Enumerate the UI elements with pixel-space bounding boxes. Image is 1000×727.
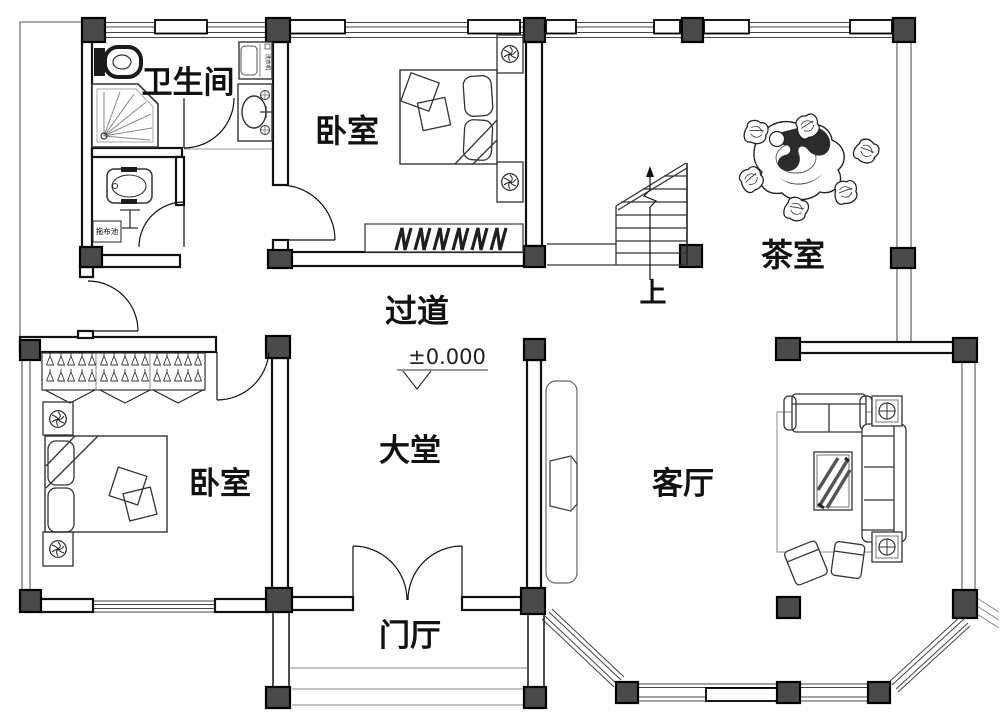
side-table-plant-top xyxy=(872,396,902,426)
elevation-marker xyxy=(397,370,488,389)
tub-room-door xyxy=(139,202,184,247)
bedroom-top-door xyxy=(280,185,335,240)
bathroom-east-wall-upper xyxy=(273,42,288,185)
bedroom-left-south-wall-b xyxy=(215,599,267,612)
coffee-table xyxy=(814,452,852,510)
side-table-plant-bottom xyxy=(872,532,902,562)
floor-plan: 洗衣机 xyxy=(0,0,1000,727)
label-mop-pool: 拖布池 xyxy=(96,226,119,236)
bedroom-left-door xyxy=(217,352,269,400)
bathtub-icon xyxy=(107,167,152,204)
tub-room-south-wall xyxy=(93,255,180,267)
mop-pool-icon xyxy=(93,210,140,242)
eave-line xyxy=(20,22,82,341)
label-corridor: 过道 xyxy=(385,293,449,329)
entry-wall-left xyxy=(290,597,353,610)
label-hall: 大堂 xyxy=(379,433,441,468)
label-living-room: 客厅 xyxy=(652,466,714,501)
door-jamb-notch xyxy=(78,331,93,338)
washing-machine-icon: 洗衣机 xyxy=(239,42,272,79)
label-bathroom: 卫生间 xyxy=(142,65,235,100)
staircase xyxy=(547,163,687,280)
corridor-west-door xyxy=(88,281,138,331)
hall-living-divider-wall xyxy=(527,360,541,590)
porch-steps xyxy=(290,668,527,705)
label-entrance-hall: 门厅 xyxy=(379,618,441,653)
bay-window-sill xyxy=(706,688,778,701)
bedroom-left-south-wall-a xyxy=(40,599,93,612)
label-elevation: ±0.000 xyxy=(408,345,486,369)
bathroom-door xyxy=(184,98,234,148)
entry-double-door xyxy=(353,546,462,600)
bedroom-top-east-wall xyxy=(526,42,542,246)
bathroom-west-wall xyxy=(82,40,92,267)
tv-cabinet-icon xyxy=(546,381,577,583)
sofa-three-seat xyxy=(862,424,906,542)
label-bedroom-top: 卧室 xyxy=(315,113,379,149)
label-stairs-up: 上 xyxy=(640,278,667,308)
bedroom-left-north-wall xyxy=(20,337,216,352)
armchair-right xyxy=(831,541,865,579)
sofa-two-seat xyxy=(784,394,872,432)
bedroom-left-east-wall xyxy=(272,358,288,592)
bedroom-top-south-wall xyxy=(281,252,524,266)
vanity-sink-icon xyxy=(238,84,272,141)
armchair-left xyxy=(783,540,828,586)
tub-room-east-wall xyxy=(176,157,184,205)
entry-wall-right xyxy=(462,597,522,610)
wardrobe-left-bedroom xyxy=(42,353,205,403)
washing-machine-label: 洗衣机 xyxy=(264,54,272,71)
floor-plan-canvas: 洗衣机 xyxy=(0,0,1000,727)
label-tea-room: 茶室 xyxy=(761,237,825,273)
corridor-west-jamb xyxy=(80,267,93,277)
wardrobe-top-bedroom xyxy=(365,224,523,252)
label-bedroom-left: 卧室 xyxy=(189,466,251,501)
toilet-icon xyxy=(94,47,141,77)
bed-top-bedroom xyxy=(400,35,523,202)
tea-room-south-wall xyxy=(798,342,957,353)
bathroom-south-wall xyxy=(92,148,182,157)
bed-left-bedroom xyxy=(43,402,167,566)
